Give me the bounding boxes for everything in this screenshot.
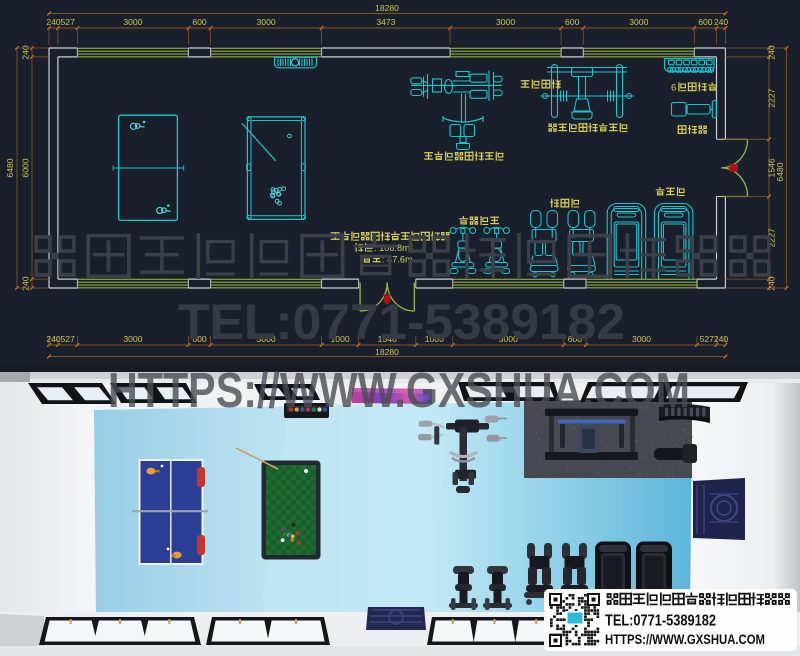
svg-text:TEL:0771-5389182: TEL:0771-5389182 — [605, 613, 716, 630]
svg-text:240: 240 — [46, 17, 61, 27]
svg-text:HTTPS://WWW.GXSHUA.COM: HTTPS://WWW.GXSHUA.COM — [108, 364, 690, 418]
svg-text:6: 6 — [671, 83, 676, 94]
svg-text:600: 600 — [698, 17, 713, 27]
svg-text:3000: 3000 — [123, 17, 142, 27]
svg-text:18280: 18280 — [375, 3, 399, 13]
svg-text:3000: 3000 — [496, 17, 515, 27]
svg-text:527: 527 — [700, 334, 715, 344]
svg-text:600: 600 — [565, 17, 580, 27]
svg-text:240: 240 — [767, 45, 777, 60]
svg-text:3000: 3000 — [123, 334, 142, 344]
svg-text:240: 240 — [21, 45, 31, 60]
svg-text:3000: 3000 — [257, 17, 276, 27]
svg-text:6480: 6480 — [5, 158, 15, 177]
svg-text:3473: 3473 — [376, 17, 395, 27]
svg-text:HTTPS://WWW.GXSHUA.COM: HTTPS://WWW.GXSHUA.COM — [605, 631, 765, 647]
svg-text:6000: 6000 — [21, 158, 31, 177]
svg-text:527: 527 — [61, 334, 76, 344]
svg-text:TEL:0771-5389182: TEL:0771-5389182 — [178, 294, 625, 350]
svg-text:3000: 3000 — [632, 334, 651, 344]
svg-text:527: 527 — [61, 17, 76, 27]
svg-text:3000: 3000 — [629, 17, 648, 27]
svg-text:240: 240 — [767, 276, 777, 291]
svg-text:240: 240 — [714, 17, 729, 27]
svg-text:240: 240 — [21, 276, 31, 291]
svg-text:240: 240 — [46, 334, 61, 344]
svg-text:: 106.8m²: : 106.8m² — [374, 243, 413, 253]
svg-text:2227: 2227 — [767, 88, 777, 107]
svg-text:240: 240 — [714, 334, 729, 344]
svg-text:6480: 6480 — [775, 162, 785, 181]
svg-text:600: 600 — [192, 17, 207, 27]
